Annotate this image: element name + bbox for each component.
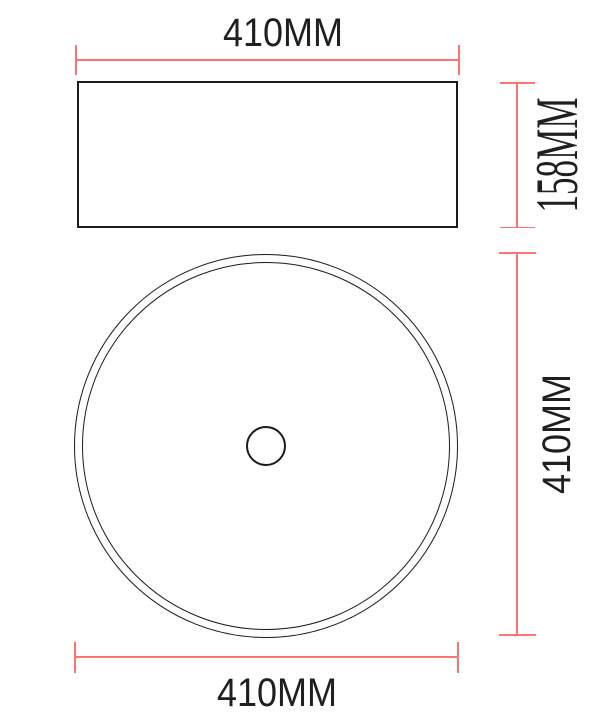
top-dimension-tick-right [458, 45, 460, 75]
diameter-dimension-label: 410MM [535, 362, 579, 506]
basin-technical-drawing: 410MM 158MM 410MM 410MM [0, 0, 600, 712]
diameter-dimension-tick-bottom [499, 634, 536, 636]
side-height-dimension-tick-top [500, 82, 535, 84]
bottom-dimension-line [75, 656, 458, 658]
side-height-dimension-tick-bottom [500, 227, 535, 229]
diameter-dimension-tick-top [499, 252, 536, 254]
bottom-width-dimension-label: 410MM [205, 671, 349, 712]
top-width-dimension-label: 410MM [211, 11, 355, 55]
drain-hole-circle [246, 426, 286, 466]
bottom-dimension-tick-left [74, 642, 76, 673]
bottom-dimension-tick-right [457, 642, 459, 673]
side-height-dimension-label: 158MM [525, 94, 589, 217]
diameter-dimension-line [516, 253, 518, 635]
basin-side-view-rectangle [77, 81, 458, 228]
top-dimension-tick-left [75, 45, 77, 75]
top-dimension-line [76, 59, 459, 61]
side-height-dimension-line [516, 83, 518, 228]
